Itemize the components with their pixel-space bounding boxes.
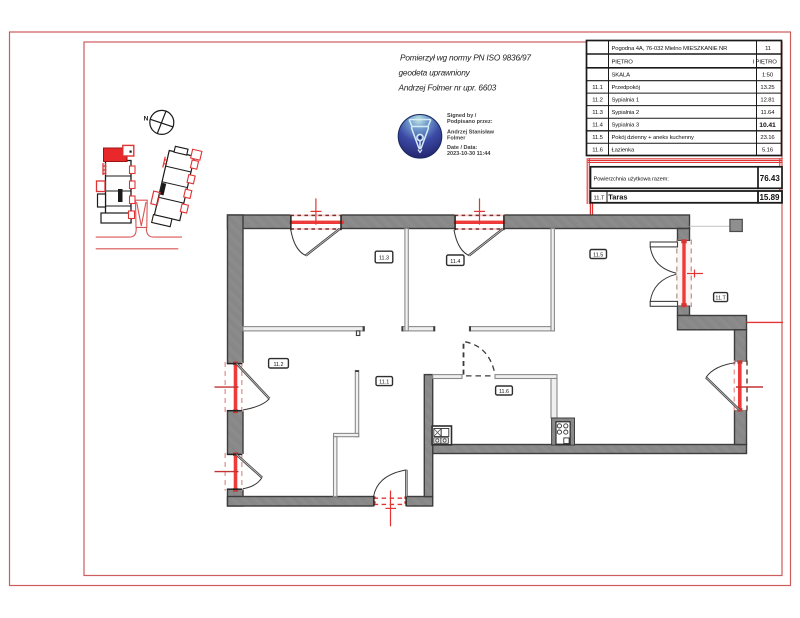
svg-text:11.T: 11.T [594, 195, 605, 201]
svg-text:11.4: 11.4 [592, 123, 603, 129]
svg-text:Powierzchnia użytkowa razem:: Powierzchnia użytkowa razem: [594, 176, 670, 182]
svg-text:Sypialnia 2: Sypialnia 2 [612, 110, 640, 116]
svg-text:23.16: 23.16 [760, 135, 775, 141]
svg-text:11.2: 11.2 [592, 97, 603, 103]
svg-text:SKALA: SKALA [612, 72, 631, 78]
svg-text:Pomierzył wg normy PN ISO 983: Pomierzył wg normy PN ISO 9836/97 [400, 53, 531, 63]
svg-text:2023-10-30 11:44: 2023-10-30 11:44 [447, 151, 491, 157]
svg-text:Pokój dzienny + aneks kuchenny: Pokój dzienny + aneks kuchenny [612, 135, 695, 141]
svg-text:Folmer: Folmer [447, 135, 466, 141]
svg-text:5.16: 5.16 [762, 147, 774, 153]
svg-text:geodeta uprawniony: geodeta uprawniony [399, 68, 471, 78]
svg-text:11.5: 11.5 [593, 253, 603, 259]
svg-text:10.41: 10.41 [759, 122, 776, 129]
svg-text:Sypialnia 1: Sypialnia 1 [612, 97, 640, 103]
svg-text:Sypialnia 3: Sypialnia 3 [612, 123, 640, 129]
svg-text:11.T: 11.T [715, 296, 726, 302]
svg-text:11.1: 11.1 [379, 380, 389, 386]
svg-text:1:50: 1:50 [762, 72, 774, 78]
svg-text:11.3: 11.3 [592, 110, 603, 116]
svg-text:11: 11 [765, 46, 771, 52]
svg-text:PIĘTRO: PIĘTRO [612, 59, 634, 65]
svg-text:11.5: 11.5 [592, 135, 603, 141]
svg-text:11.3: 11.3 [379, 256, 389, 262]
svg-text:11.4: 11.4 [450, 259, 460, 265]
svg-text:Przedpokój: Przedpokój [612, 85, 640, 91]
svg-text:12.81: 12.81 [760, 97, 774, 103]
svg-text:13.25: 13.25 [760, 85, 775, 91]
svg-text:11.1: 11.1 [592, 85, 603, 91]
svg-text:11.2: 11.2 [273, 362, 283, 368]
svg-text:11.6: 11.6 [499, 389, 509, 395]
svg-text:I PIĘTRO: I PIĘTRO [753, 59, 778, 65]
svg-text:Taras: Taras [608, 193, 627, 202]
svg-text:76.43: 76.43 [760, 174, 781, 183]
svg-text:11.6: 11.6 [592, 147, 603, 153]
svg-text:15.89: 15.89 [759, 193, 780, 202]
svg-text:N: N [144, 115, 149, 122]
svg-text:Łazienka: Łazienka [612, 147, 635, 153]
svg-text:11.64: 11.64 [761, 110, 776, 116]
svg-text:Podpisano przez:: Podpisano przez: [447, 119, 493, 125]
svg-text:Pogodna 4A, 76-032 Mielno MIES: Pogodna 4A, 76-032 Mielno MIESZKANIE NR [612, 46, 728, 52]
svg-text:Andrzej Folmer nr upr. 6603: Andrzej Folmer nr upr. 6603 [398, 83, 497, 93]
